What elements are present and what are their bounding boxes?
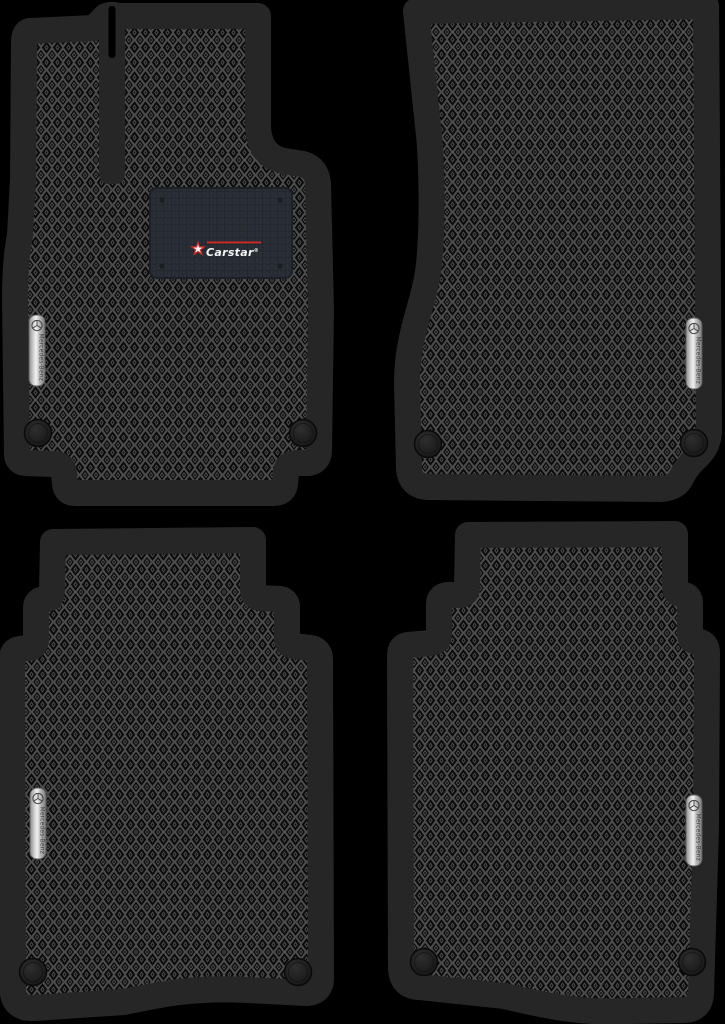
mat-rear-right [392,528,718,1024]
mat-front-right [392,2,718,504]
fastener-clip [285,959,312,986]
fastener-clip [25,420,52,447]
fastener-clip [411,949,438,976]
mat-surface [407,6,709,489]
fastener-clip [415,431,442,458]
fastener-clip [20,959,47,986]
heel-pad: Carstar® [150,188,292,278]
mat-front-left: Carstar® [8,10,348,510]
product-photo: Mercedes-Benz [0,0,725,1024]
mat-surface [12,540,321,1008]
heel-pad-plate [150,188,292,278]
mat-rear-left [4,532,334,1024]
mercedes-badge [686,795,702,866]
carstar-underline [207,242,261,244]
mat-surface [400,534,707,1012]
mat-slot-gap [109,6,116,58]
mercedes-badge [29,315,45,386]
carstar-label: Carstar [206,246,254,259]
fastener-clip [290,420,317,447]
fastener-clip [679,949,706,976]
mercedes-badge [686,318,702,389]
fastener-clip [681,430,708,457]
registered-mark: ® [254,248,259,254]
mercedes-badge [30,788,46,859]
carstar-wordmark: Carstar® [206,246,259,259]
